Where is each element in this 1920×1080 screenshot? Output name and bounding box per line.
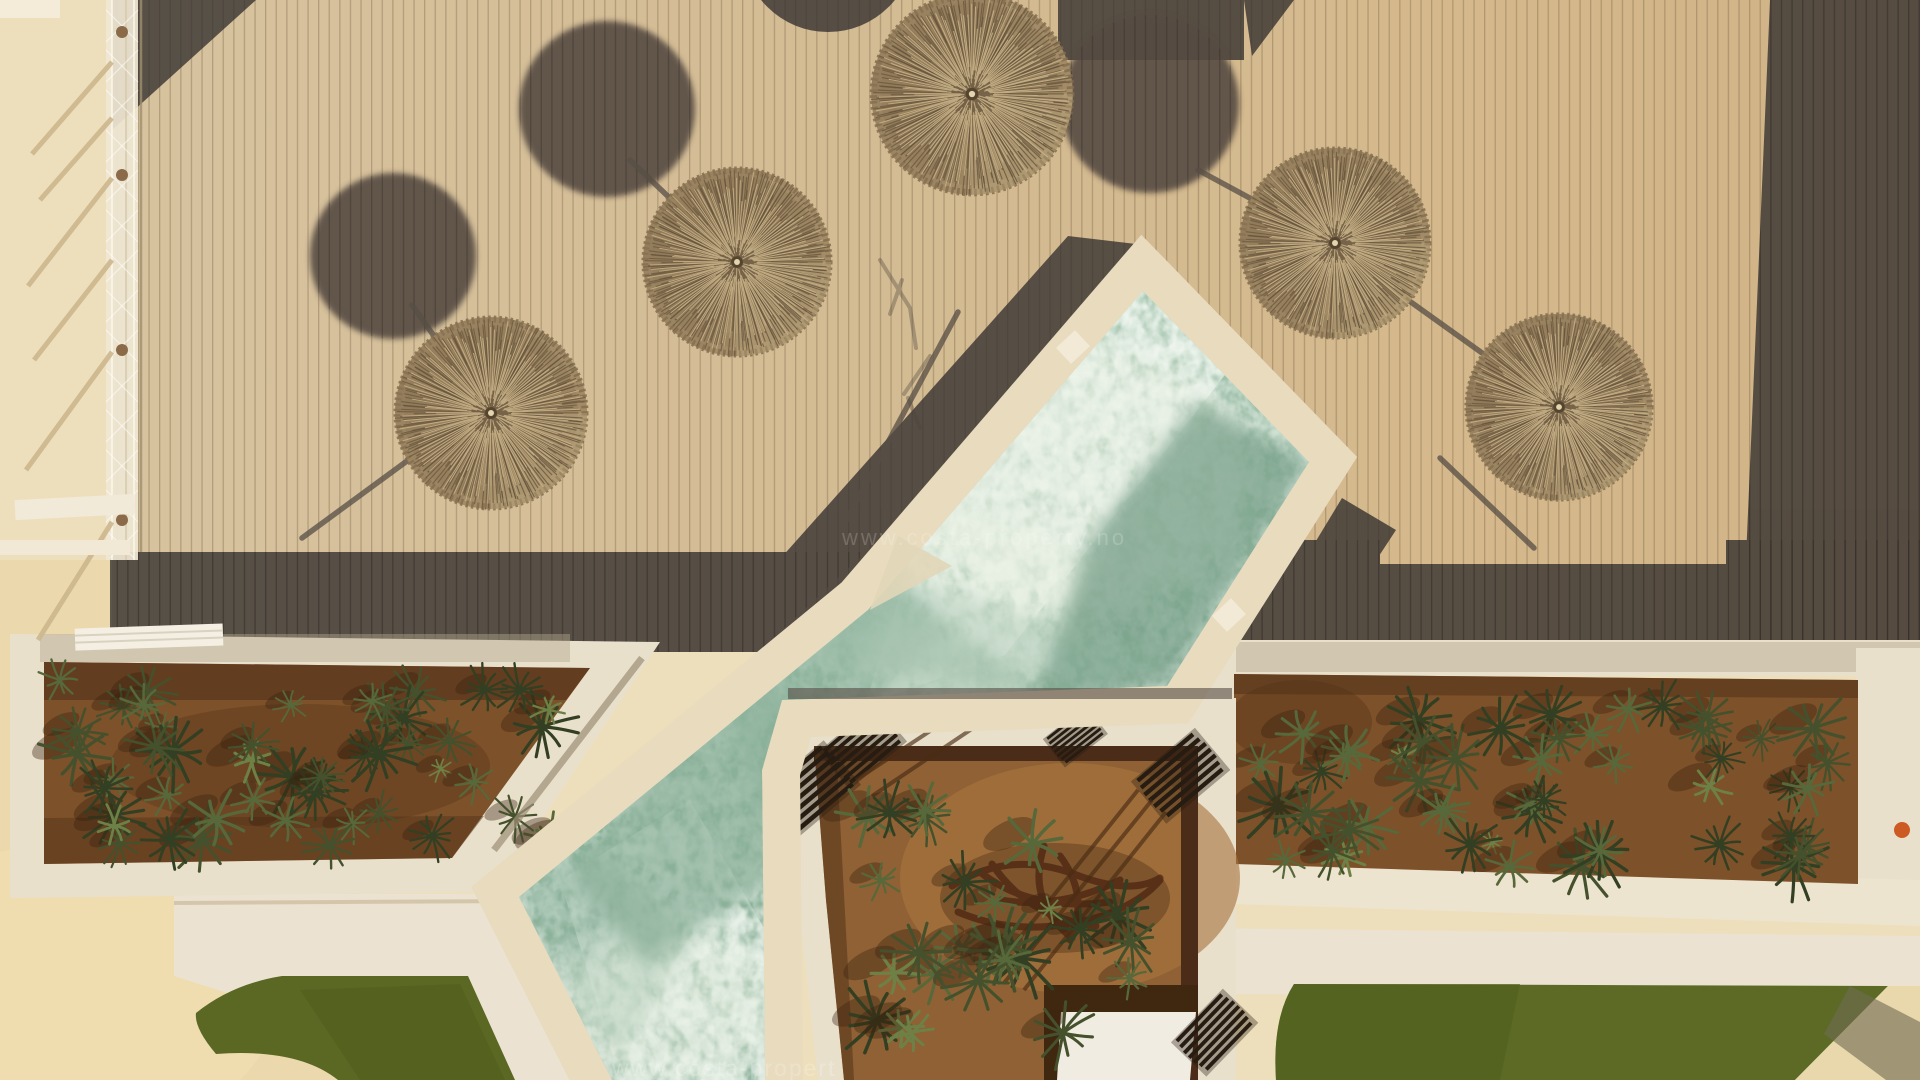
svg-text:www.costa-property.no: www.costa-property.no xyxy=(841,525,1127,550)
svg-text:www.costa-propert: www.costa-propert xyxy=(611,1055,836,1080)
